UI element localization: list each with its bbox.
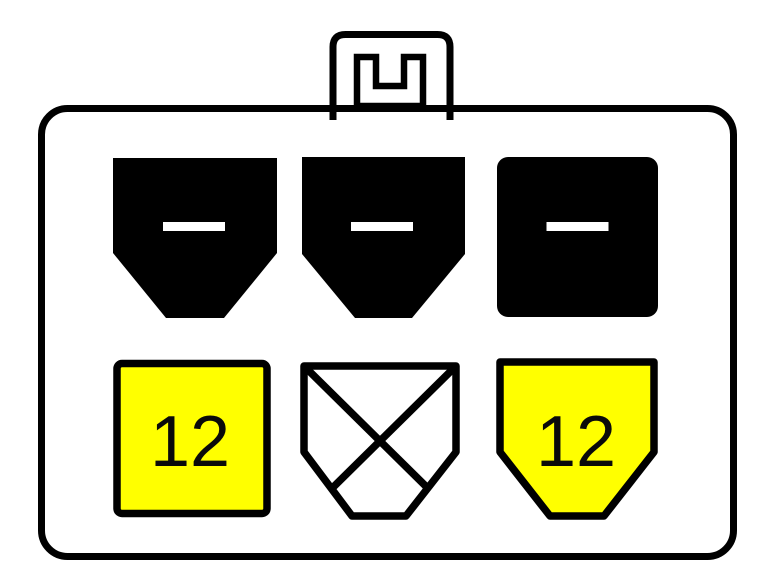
pin-top-right-body [497, 157, 658, 317]
pin-label-12v: 12 [150, 402, 230, 482]
connector-diagram-canvas: 12 12 [0, 0, 768, 588]
pin-top-right [497, 157, 658, 317]
minus-dash-icon [163, 222, 225, 231]
minus-dash-icon [351, 222, 413, 231]
pin-label-12v: 12 [536, 402, 616, 482]
minus-dash-icon [547, 222, 609, 231]
pin-bottom-left: 12 [117, 364, 267, 514]
connector-pinout-diagram: 12 12 [0, 0, 768, 588]
